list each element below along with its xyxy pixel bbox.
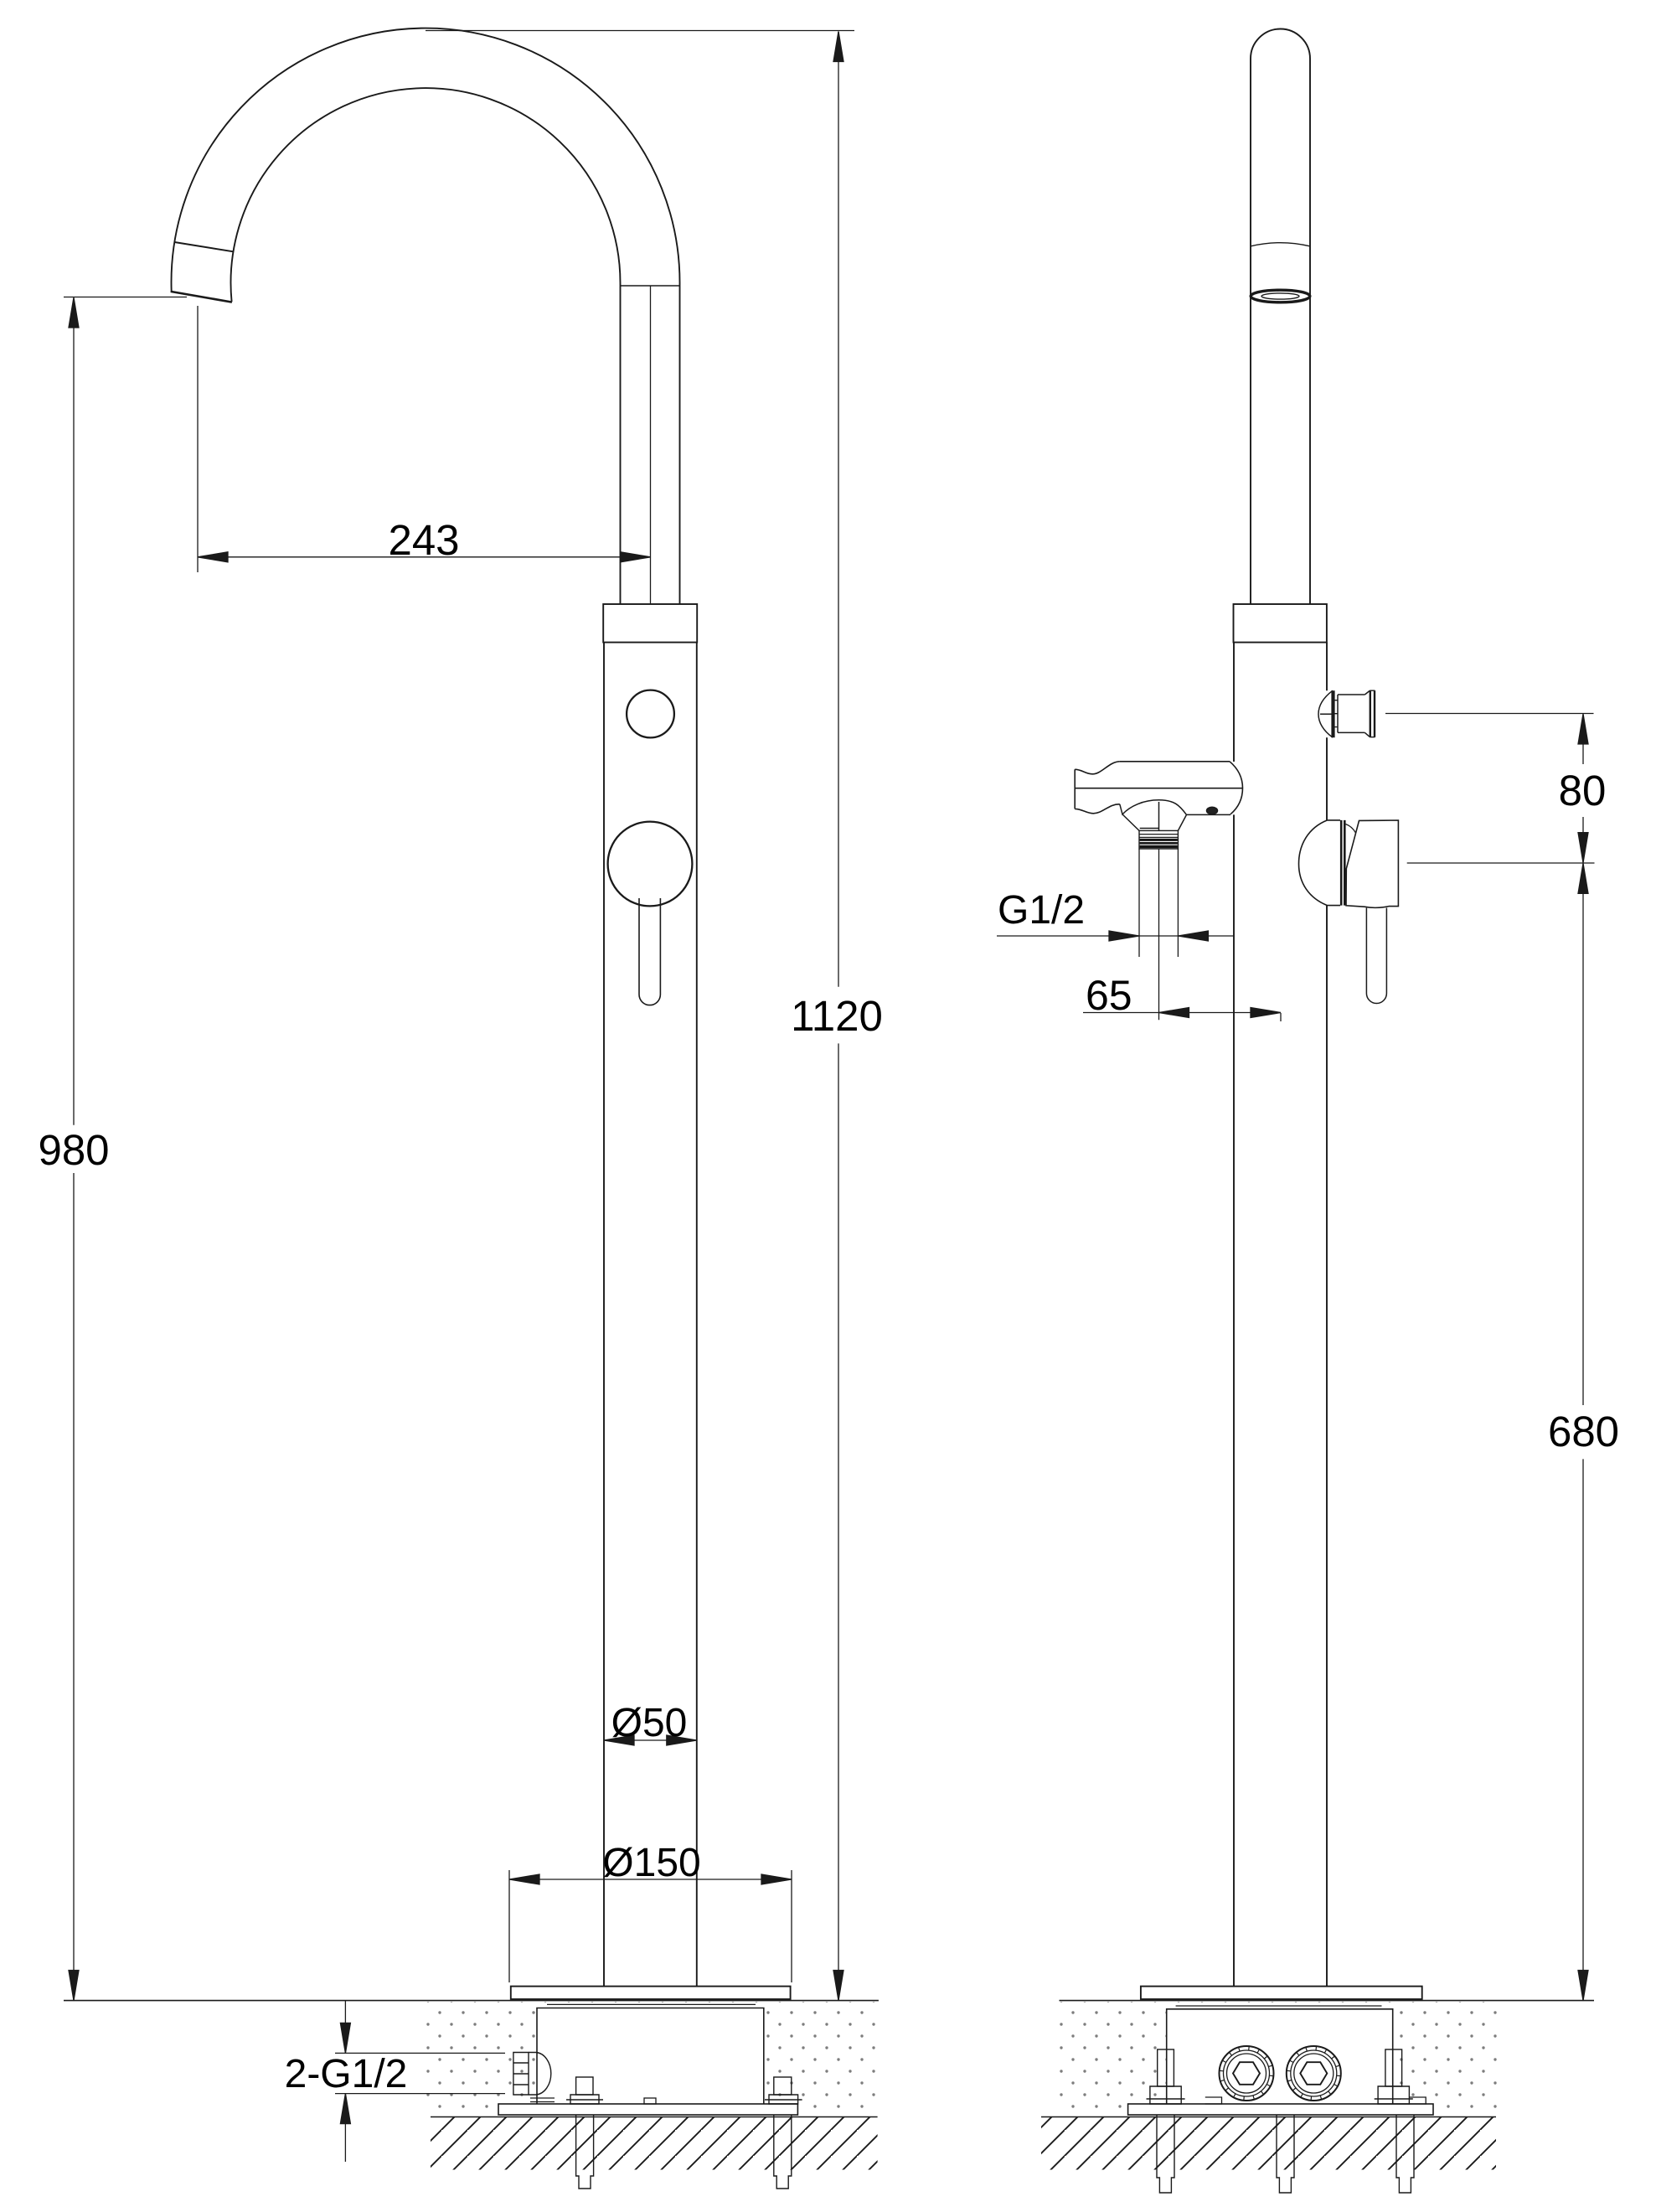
svg-text:G1/2: G1/2 <box>998 888 1085 933</box>
svg-text:65: 65 <box>1086 972 1132 1019</box>
svg-text:980: 980 <box>38 1126 109 1174</box>
svg-text:243: 243 <box>388 516 459 564</box>
svg-text:2-G1/2: 2-G1/2 <box>285 2052 408 2096</box>
svg-text:80: 80 <box>1559 767 1607 814</box>
svg-text:Ø50: Ø50 <box>611 1701 688 1745</box>
svg-text:1120: 1120 <box>791 992 883 1040</box>
svg-text:Ø150: Ø150 <box>602 1841 700 1885</box>
svg-text:680: 680 <box>1548 1408 1619 1455</box>
